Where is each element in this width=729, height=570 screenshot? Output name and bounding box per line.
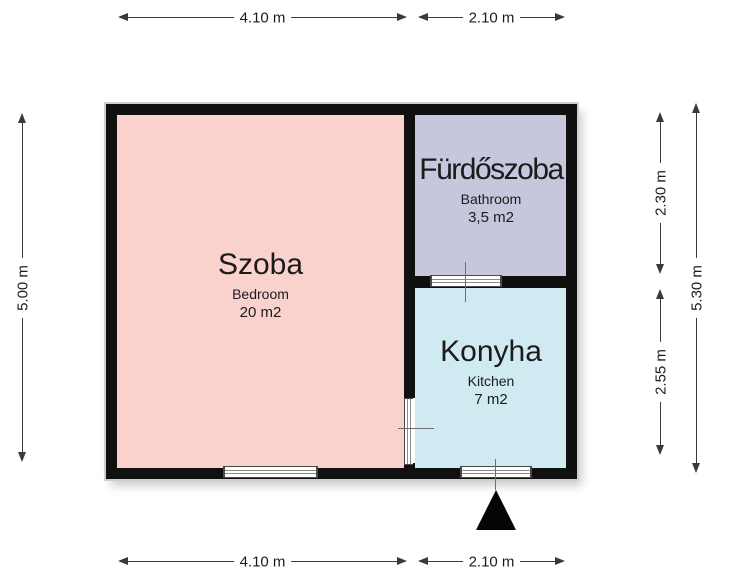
bedroom-kitchen-door-centerline [398, 428, 434, 429]
wall-bedroom-divider [404, 115, 415, 398]
dimension-label: 2.30 m [653, 163, 670, 223]
entrance-door-centerline [495, 459, 496, 490]
arrow-down-icon [18, 452, 26, 462]
bathroom-label: Fürdőszoba Bathroom 3,5 m2 [416, 153, 566, 227]
kitchen-name: Konyha [416, 335, 566, 369]
bathroom-name: Fürdőszoba [416, 153, 566, 187]
dimension-right-total: 5.30 m [691, 103, 702, 473]
bathroom-subtitle: Bathroom [416, 192, 566, 208]
entrance-door-icon [460, 466, 532, 478]
bathroom-area: 3,5 m2 [416, 210, 566, 227]
arrow-right-icon [397, 13, 407, 21]
bathroom-door-centerline [465, 262, 466, 302]
bathroom-door-icon [430, 275, 502, 287]
arrow-down-icon [692, 463, 700, 473]
dimension-top-right: 2.10 m [418, 12, 565, 23]
bedroom-subtitle: Bedroom [117, 287, 404, 303]
bedroom-kitchen-door-icon [404, 398, 413, 465]
dimension-bottom-left: 4.10 m [118, 556, 407, 567]
dimension-bottom-right: 2.10 m [418, 556, 565, 567]
dimension-left-total: 5.00 m [17, 113, 28, 462]
arrow-right-icon [397, 557, 407, 565]
kitchen-subtitle: Kitchen [416, 374, 566, 390]
arrow-right-icon [555, 13, 565, 21]
dimension-label: 5.30 m [689, 258, 706, 318]
dimension-label: 2.10 m [463, 554, 521, 570]
arrow-down-icon [656, 445, 664, 455]
arrow-down-icon [656, 264, 664, 274]
bedroom-label: Szoba Bedroom 20 m2 [117, 248, 404, 322]
dimension-right-kitchen: 2.55 m [655, 289, 666, 455]
kitchen-label: Konyha Kitchen 7 m2 [416, 335, 566, 409]
entrance-arrow-icon [476, 490, 516, 530]
dimension-label: 4.10 m [234, 554, 292, 570]
bedroom-name: Szoba [117, 248, 404, 282]
dimension-label: 4.10 m [234, 10, 292, 27]
window-icon [223, 466, 318, 478]
bedroom-area: 20 m2 [117, 305, 404, 322]
dimension-right-bathroom: 2.30 m [655, 112, 666, 274]
dimension-label: 2.10 m [463, 10, 521, 27]
dimension-label: 2.55 m [653, 342, 670, 402]
dimension-top-left: 4.10 m [118, 12, 407, 23]
floor-plan-canvas: 4.10 m 2.10 m 4.10 m 2.10 m 5.00 m 2.30 … [0, 0, 729, 570]
kitchen-area: 7 m2 [416, 392, 566, 409]
arrow-right-icon [555, 557, 565, 565]
dimension-label: 5.00 m [15, 258, 32, 318]
